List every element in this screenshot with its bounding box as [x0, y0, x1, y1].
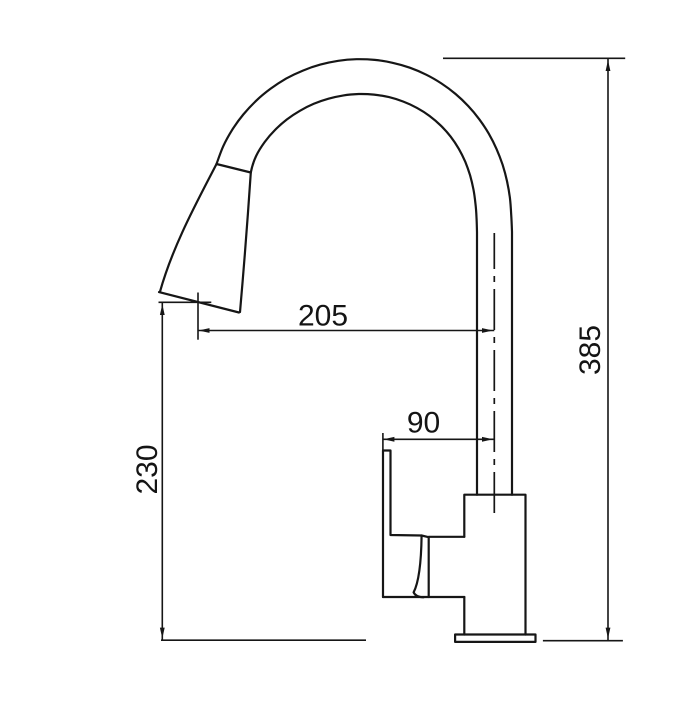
svg-text:230: 230: [131, 444, 164, 494]
svg-text:205: 205: [298, 300, 348, 333]
svg-text:385: 385: [574, 325, 607, 375]
svg-text:90: 90: [407, 406, 440, 439]
